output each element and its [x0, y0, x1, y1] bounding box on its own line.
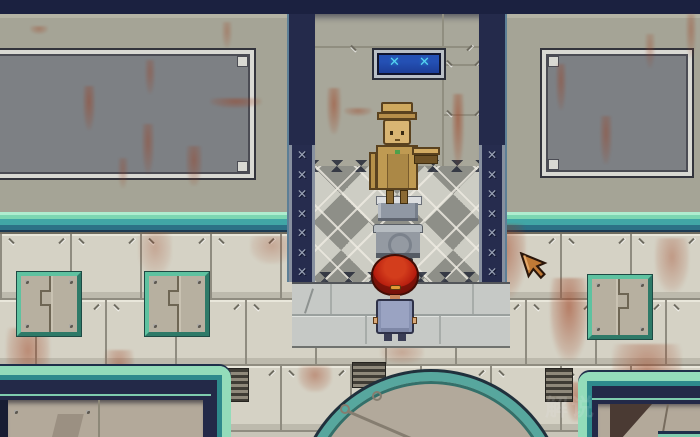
plate-seam — [313, 46, 481, 48]
statue-mouth — [395, 139, 400, 141]
teal-wall-plate — [588, 275, 652, 339]
pillar-right: ✕ ✕ ✕ ✕ ✕ ✕ ✕ — [479, 14, 507, 282]
teal-wall-plate — [17, 272, 81, 336]
ceiling-band — [0, 0, 700, 15]
screw — [25, 324, 29, 328]
frame-notch — [237, 56, 248, 67]
statue-apron — [387, 154, 409, 188]
rust-stain — [380, 346, 424, 364]
statue-tray-front — [414, 155, 438, 164]
panel-shadow — [50, 414, 83, 437]
player-character[interactable] — [371, 254, 419, 342]
screw — [197, 280, 201, 284]
rust-stain — [556, 64, 566, 110]
panel-seam — [98, 400, 100, 437]
altar-body — [376, 232, 420, 253]
rust-stain — [327, 88, 341, 134]
rust-stain — [550, 278, 588, 360]
screw — [69, 280, 73, 284]
dome-detail — [307, 381, 537, 437]
door-gap — [0, 400, 8, 437]
screw — [596, 327, 600, 331]
rust-stain — [645, 34, 655, 68]
inner-frame — [0, 375, 222, 437]
statue-eye — [390, 131, 393, 135]
wall-trim-left — [0, 212, 287, 234]
rust-stain — [655, 238, 689, 292]
step-crack — [304, 288, 314, 313]
player-coat — [376, 299, 414, 334]
pillar-lattice: ✕ ✕ ✕ ✕ ✕ ✕ ✕ — [479, 145, 505, 282]
x-icon: ✕ — [419, 55, 430, 70]
game-viewport[interactable]: ✕ ✕ ✕ ✕ ✕ ✕ ✕ ✕ ✕ ✕ ✕ ✕ ✕ ✕ ✕ ✕ — [0, 0, 700, 437]
screw — [197, 324, 201, 328]
watermark: 解说 — [545, 388, 597, 422]
player-foot — [398, 334, 406, 341]
screw — [596, 283, 600, 287]
rust-stain — [186, 146, 202, 186]
screw — [25, 280, 29, 284]
step-seam — [330, 284, 332, 314]
statue-leg — [386, 190, 394, 204]
broken-corner — [610, 404, 652, 437]
statue-eye — [401, 131, 404, 135]
lower-panel — [8, 400, 203, 437]
lower-panel — [598, 404, 700, 437]
rust-stain — [686, 14, 696, 58]
rust-stain — [83, 86, 95, 130]
mint-step — [658, 431, 700, 437]
mint-line — [0, 394, 211, 396]
frame-notch — [237, 161, 248, 172]
step-seam — [439, 316, 441, 344]
screw — [640, 283, 644, 287]
rust-stain — [452, 94, 464, 166]
mint-line — [592, 398, 700, 400]
golden-statue[interactable] — [366, 100, 442, 206]
statue-gem — [395, 150, 400, 154]
screw — [153, 324, 157, 328]
rust-stain — [118, 158, 128, 188]
player-foot — [384, 334, 392, 341]
rust-stain — [222, 22, 232, 48]
rust-stain — [138, 232, 172, 276]
rust-stain — [210, 98, 262, 108]
round-dome-arch[interactable] — [298, 372, 564, 437]
rust-stain — [30, 26, 48, 34]
statue-head — [383, 119, 411, 145]
statue-leg — [400, 190, 408, 204]
screw — [14, 410, 18, 414]
x-icon: ✕ — [389, 55, 400, 70]
lower-room-wall-left — [0, 366, 231, 437]
step-seam — [472, 284, 474, 314]
screw — [86, 410, 90, 414]
teal-wall-plate — [145, 272, 209, 336]
player-hat-buckle — [390, 285, 401, 290]
inner-frame — [587, 381, 700, 437]
statue-tray — [412, 147, 440, 155]
pillar-left: ✕ ✕ ✕ ✕ ✕ ✕ ✕ — [287, 14, 315, 282]
rust-stain — [142, 124, 154, 174]
screw — [640, 327, 644, 331]
screw — [69, 324, 73, 328]
player-hand — [412, 317, 417, 324]
statue-arm — [369, 152, 377, 190]
plate-seam — [442, 14, 444, 166]
rust-stain — [145, 60, 155, 94]
screw — [153, 280, 157, 284]
wall-sign[interactable]: ✕ ✕ — [374, 50, 444, 78]
frame-notch — [548, 159, 559, 170]
pillar-lattice: ✕ ✕ ✕ ✕ ✕ ✕ ✕ — [289, 145, 315, 282]
rust-stain — [600, 116, 612, 164]
wall-trim-right — [505, 212, 700, 234]
step-seam — [365, 316, 367, 344]
player-hand — [373, 317, 378, 324]
